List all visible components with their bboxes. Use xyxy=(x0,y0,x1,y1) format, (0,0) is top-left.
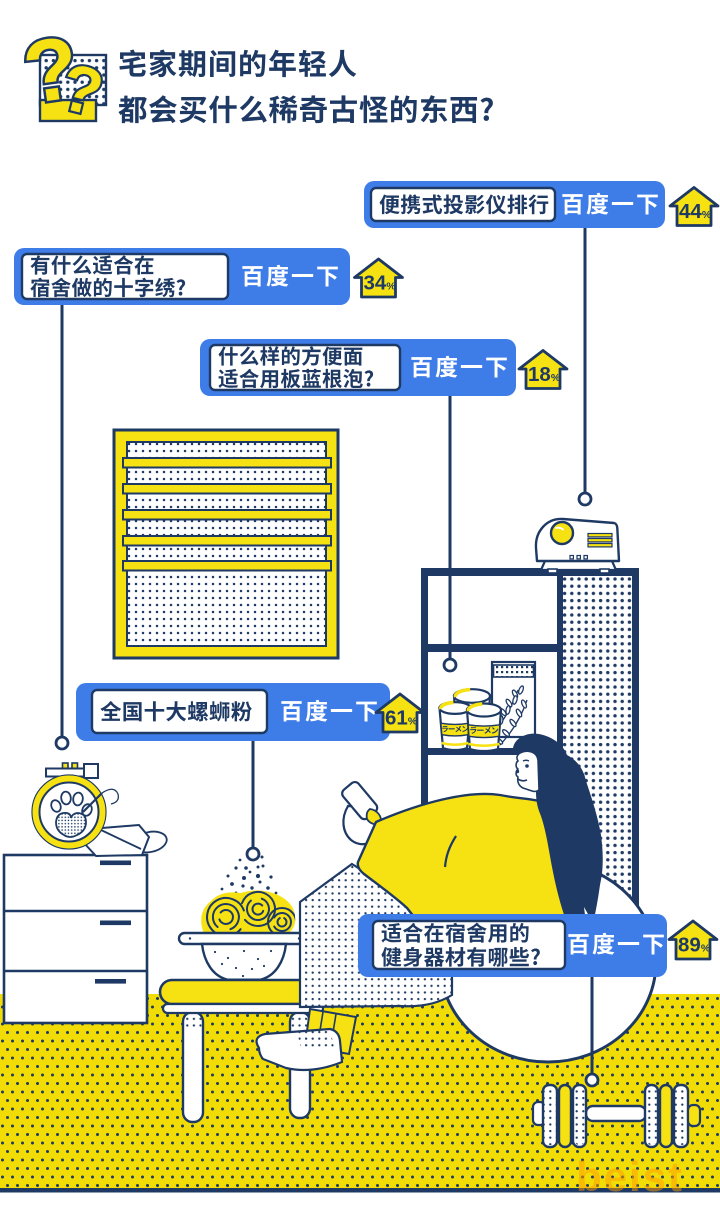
svg-text:beist: beist xyxy=(576,1153,684,1200)
